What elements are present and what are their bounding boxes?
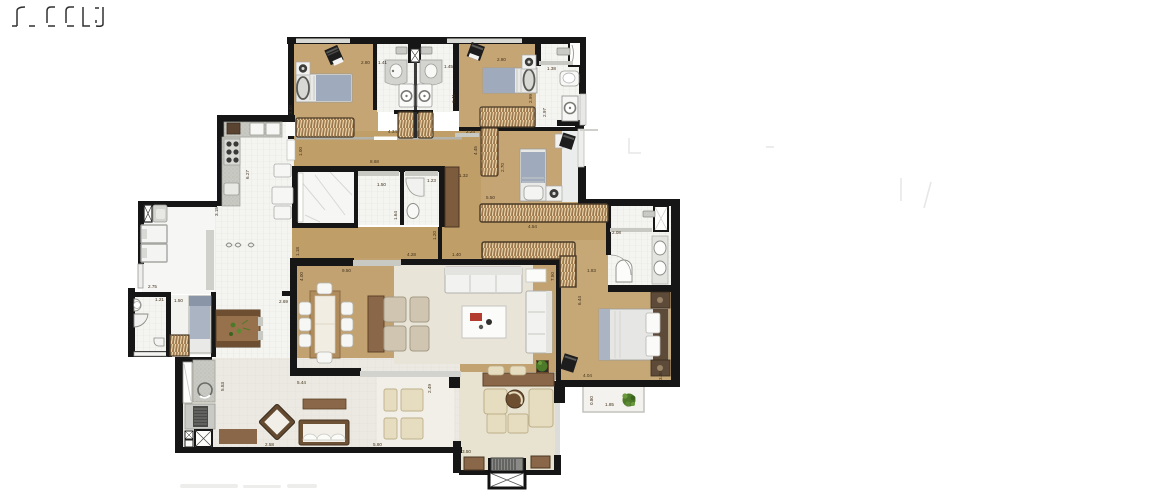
svg-text:1.00: 1.00 [298, 147, 303, 156]
svg-text:1.20: 1.20 [432, 231, 437, 240]
svg-text:4.45: 4.45 [473, 146, 478, 155]
svg-text:6.44: 6.44 [577, 296, 582, 305]
svg-text:1.83: 1.83 [587, 268, 596, 273]
svg-text:3.40: 3.40 [288, 105, 293, 114]
svg-text:2.08: 2.08 [612, 230, 621, 235]
svg-text:5.50: 5.50 [486, 195, 495, 200]
svg-text:6.27: 6.27 [245, 170, 250, 179]
svg-text:2.58: 2.58 [265, 442, 274, 447]
svg-text:1.23: 1.23 [427, 178, 436, 183]
svg-text:5.53: 5.53 [220, 382, 225, 391]
svg-text:4.28: 4.28 [407, 252, 416, 257]
svg-text:1.45: 1.45 [444, 64, 453, 69]
svg-text:1.50: 1.50 [174, 298, 183, 303]
svg-text:8.68: 8.68 [370, 159, 379, 164]
svg-text:1.18: 1.18 [295, 247, 300, 256]
svg-text:2.80: 2.80 [497, 57, 506, 62]
svg-text:1.85: 1.85 [605, 402, 614, 407]
svg-text:2.99: 2.99 [528, 94, 533, 103]
svg-text:1.38: 1.38 [547, 66, 556, 71]
svg-text:7.50: 7.50 [550, 272, 555, 281]
svg-text:4.04: 4.04 [583, 373, 592, 378]
svg-text:4.34: 4.34 [388, 129, 397, 134]
svg-text:2.24: 2.24 [466, 129, 475, 134]
svg-text:9.50: 9.50 [342, 268, 351, 273]
svg-text:2.70: 2.70 [500, 163, 505, 172]
svg-text:1.41: 1.41 [378, 60, 387, 65]
svg-text:1.64: 1.64 [393, 211, 398, 220]
svg-text:2.41: 2.41 [451, 94, 456, 103]
svg-text:1.40: 1.40 [452, 252, 461, 257]
svg-text:4.00: 4.00 [299, 272, 304, 281]
svg-text:0.80: 0.80 [589, 396, 594, 405]
svg-text:5.80: 5.80 [373, 442, 382, 447]
svg-text:2.75: 2.75 [148, 284, 157, 289]
svg-text:3.15: 3.15 [214, 207, 219, 216]
svg-text:5.44: 5.44 [297, 380, 306, 385]
svg-text:1.32: 1.32 [459, 173, 468, 178]
svg-text:2.69: 2.69 [279, 299, 288, 304]
svg-text:3.50: 3.50 [462, 449, 471, 454]
svg-text:3.30: 3.30 [658, 371, 663, 380]
svg-text:1.50: 1.50 [377, 182, 386, 187]
svg-text:1.21: 1.21 [155, 297, 164, 302]
svg-text:2.97: 2.97 [542, 108, 547, 117]
svg-text:2.49: 2.49 [427, 384, 432, 393]
svg-text:4.54: 4.54 [528, 224, 537, 229]
svg-text:2.80: 2.80 [361, 60, 370, 65]
